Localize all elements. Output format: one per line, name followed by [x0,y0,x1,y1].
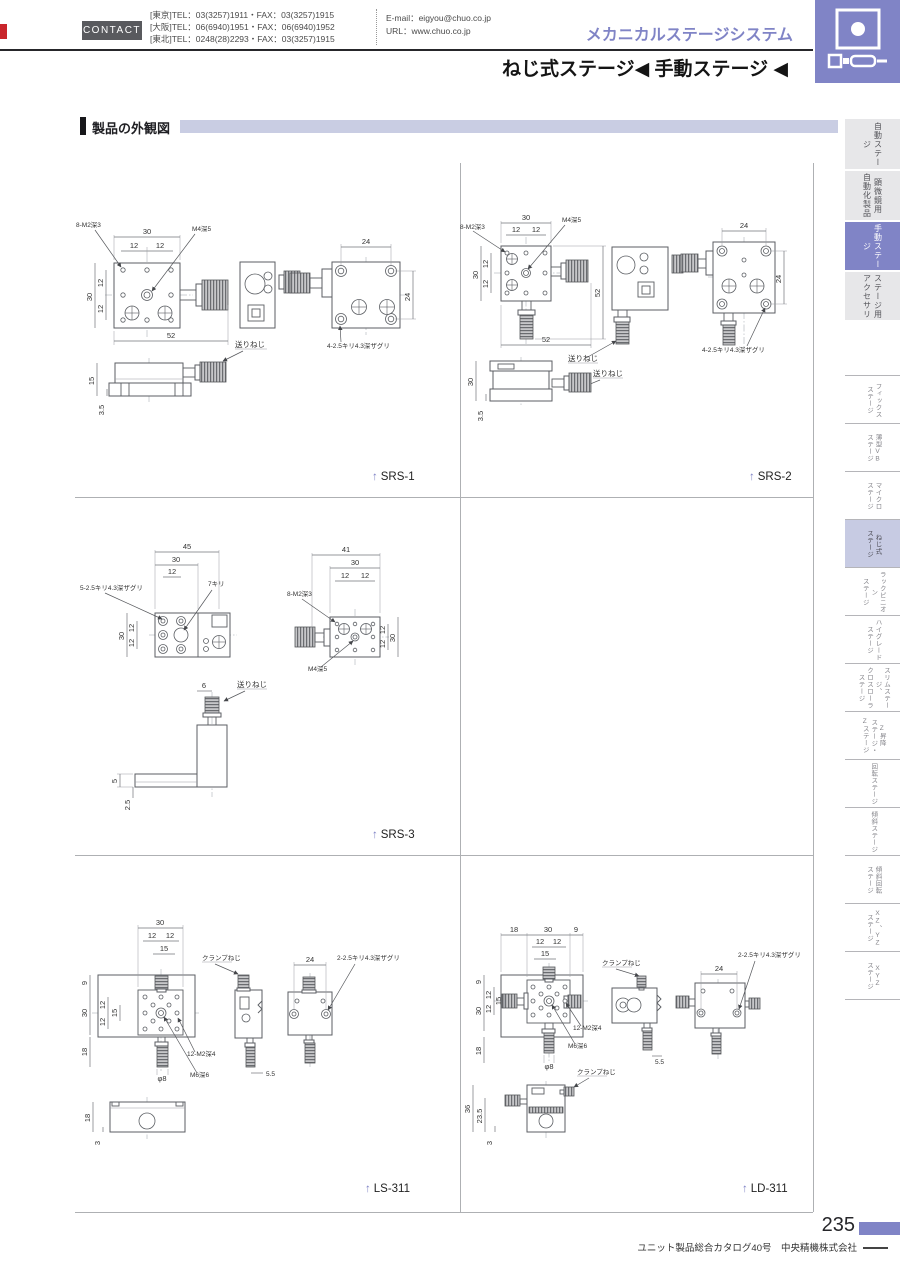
dim-label: 15 [87,377,96,385]
dim-label: 12 [532,225,540,234]
dim-label: 12 [168,567,176,576]
tel-tohoku: [東北]TEL：0248(28)2293・FAX：03(3257)1915 [150,33,335,45]
system-title: メカニカルステージシステム [586,21,793,45]
srs2-drawing: 30 12 12 8-M2深3 M4深5 30 12 12 52 52 送りねじ… [460,165,813,497]
tab-label: ステージ [864,866,873,894]
ld311-front-view: クランプねじ 36 23.5 3 [463,1068,616,1145]
page-number-bar [859,1222,900,1235]
srs1-bottom-view: 24 24 4-2.5キリ4.3深ザグリ [290,237,416,350]
catalog-note: ユニット製品総合カタログ40号 中央精機株式会社 [637,1240,857,1254]
dim-label: 12 [166,931,174,940]
product-label-ls311: ↑LS-311 [365,1183,410,1195]
product-name: SRS-2 [758,471,792,483]
dim-label: 52 [542,335,550,344]
srs2-front-view: 30 3.5 [466,357,591,421]
dim-label: 24 [715,964,723,973]
dim-label: 12 [553,937,561,946]
tab-label: Z昇降 [877,718,886,754]
dim-label: 12 [148,931,156,940]
sidebar-tab-stage-accessories[interactable]: ステージ用アクセサリ [845,272,900,320]
tab-label: Zステージ [860,718,869,754]
dim-label: 30 [544,925,552,934]
stage-icon [815,0,900,83]
section-bar [180,120,838,133]
ls311-plan-view: 30 12 12 15 9 30 12 12 15 18 φ8 クランプねじ 1… [80,918,241,1083]
product-label-ld311: ↑LD-311 [742,1183,788,1195]
dim-label: 24 [740,221,748,230]
sidebar-tab-microscope-products[interactable]: 顕微鏡用自動化製品 [845,171,900,220]
callout-label: 8-M2深3 [76,220,101,229]
tab-label: XZ、YZ [873,910,882,947]
dim-label: 30 [474,1007,483,1015]
callout-label: 4-2.5キリ4.3深ザグリ [327,341,390,350]
dim-label: 18 [83,1114,92,1122]
product-label-srs2: ↑SRS-2 [749,471,792,483]
dim-label: 5 [110,779,119,783]
up-arrow-icon: ↑ [372,829,378,841]
tab-label: 自動化製品 [862,173,873,218]
dim-label: 15 [494,997,503,1005]
dim-label: 3.5 [97,405,106,415]
tab-label: XYZ [873,962,882,990]
tab-label: 薄型VB [873,434,882,463]
dim-label: 15 [160,944,168,953]
tab-label: ステージ [856,664,865,712]
dim-label: 30 [522,213,530,222]
sidebar-subtab-tilt-stage[interactable]: 傾斜ステージ [845,807,900,856]
callout-label: M4深5 [308,664,328,673]
srs2-bottom-view: 24 24 4-2.5キリ4.3深ザグリ [681,221,787,354]
dim-label: 12 [484,1005,493,1013]
up-arrow-icon: ↑ [742,1183,748,1195]
dim-label: 3 [93,1141,102,1145]
dim-label: 30 [466,378,475,386]
tel-tokyo: [東京]TEL：03(3257)1911・FAX：03(3257)1915 [150,9,335,21]
callout-label: 8-M2深3 [460,222,485,231]
sidebar-subtab-xz-yz-stage[interactable]: XZ、YZステージ [845,903,900,952]
srs1-side-view [240,262,300,328]
tab-label: マイクロ [873,482,882,510]
page-number: 235 [822,1214,855,1237]
dim-label: 30 [117,632,126,640]
sidebar-subtab-xyz-stage[interactable]: XYZステージ [845,951,900,1000]
tab-label: ステージ [864,910,873,947]
dim-label: 52 [167,331,175,340]
dim-label: 12 [378,640,387,648]
product-name: LS-311 [374,1183,410,1195]
sidebar-subtab-fix-stage[interactable]: フィックスステージ [845,375,900,424]
dim-label: φ8 [157,1074,166,1083]
srs1-drawing: 30 12 12 8-M2深3 M4深5 30 12 12 52 24 [75,165,460,497]
callout-label: クランプねじ [577,1068,616,1076]
dim-label: 12 [96,305,105,313]
tab-label: 回転ステージ [868,763,877,805]
callout-label: M4深5 [562,215,582,224]
callout-label: 8-M2深3 [287,589,312,598]
product-label-srs3: ↑SRS-3 [372,829,415,841]
tab-label: ステージ [860,568,869,616]
tab-label: ハイグレード [873,619,882,661]
product-name: SRS-1 [381,471,415,483]
dim-label: 36 [463,1105,472,1113]
grid-hline-bottom [75,1212,813,1213]
dim-label: 12 [481,260,490,268]
up-arrow-icon: ↑ [372,471,378,483]
tab-label: ステージ [864,530,873,558]
sidebar-end-rule [845,999,900,1000]
callout-label: 12-M2深4 [573,1023,602,1032]
dim-label: 12 [127,639,136,647]
srs2-plan-view: 30 12 12 8-M2深3 M4深5 30 12 12 52 52 [460,213,606,348]
dim-label: 9 [80,981,89,985]
tab-label: 自動ステージ [862,119,884,169]
ls311-front-view: 18 3 [83,1097,185,1145]
dim-label: φ8 [544,1062,553,1071]
header-rule [0,49,813,51]
ld311-rear-view: 24 2-2.5キリ4.3深ザグリ [676,950,801,1059]
contact-web-block: E-mail：eigyou@chuo.co.jp URL：www.chuo.co… [386,12,491,38]
dim-label: 12 [127,624,136,632]
tab-label: クロスローラ [864,664,873,712]
dim-label: 30 [172,555,180,564]
srs3-bottom-view: 45 30 12 5-2.5キリ4.3深ザグリ 7キリ 30 12 12 [80,542,237,657]
contact-badge: CONTACT [82,21,142,40]
tab-label: ステージ・ [868,718,877,754]
category-icon-box [815,0,900,83]
dim-label: 24 [403,293,412,301]
tab-label: 傾斜回転 [873,866,882,894]
callout-label: 送りねじ [237,679,267,689]
sidebar-subtab-micro-stage[interactable]: マイクロステージ [845,471,900,520]
dim-label: 23.5 [475,1109,484,1124]
catalog-note-rule [863,1247,888,1249]
dim-label: 12 [156,241,164,250]
tab-label: ステージ [864,482,873,510]
dim-label: 30 [80,1009,89,1017]
callout-label: 4-2.5キリ4.3深ザグリ [702,345,765,354]
sidebar-tab-manual-stage[interactable]: 手動ステージ [845,222,900,270]
tab-label: ステージ [864,619,873,661]
sidebar-subtab-screw-stage[interactable]: ねじ式ステージ [845,519,900,568]
dim-label: 24 [362,237,370,246]
dim-label: 18 [474,1047,483,1055]
dim-label: 45 [183,542,191,551]
srs2-side-view [612,247,683,344]
srs1-front-view: 15 3.5 送りねじ [87,339,267,415]
sidebar-subtab-rack-pinion-stage[interactable]: ラックピニオンステージ [845,567,900,616]
tab-label: 顕微鏡用 [873,173,884,218]
dim-label: 12 [378,626,387,634]
dim-label: 24 [306,955,314,964]
tab-label: ラックピニオン [868,568,885,616]
sidebar-subtab-slim-crossroller-stage[interactable]: スリムステージ、クロスローラステージ [845,663,900,712]
tab-label: ステージ [864,962,873,990]
contact-phone-block: [東京]TEL：03(3257)1911・FAX：03(3257)1915 [大… [150,9,335,45]
tel-osaka: [大阪]TEL：06(6940)1951・FAX：06(6940)1952 [150,21,335,33]
header-divider [376,9,377,45]
callout-label: 2-2.5キリ4.3深ザグリ [738,950,801,959]
product-name: SRS-3 [381,829,415,841]
dim-label: 5.5 [655,1059,664,1066]
srs3-drawing: 45 30 12 5-2.5キリ4.3深ザグリ 7キリ 30 12 12 41 … [75,497,460,855]
dim-label: 12 [481,280,490,288]
dim-label: 3.5 [476,411,485,421]
callout-label: 7キリ [208,581,225,588]
callout-label: M6深6 [190,1070,210,1079]
callout-label: 12-M2深4 [187,1049,216,1058]
dim-label: 30 [156,918,164,927]
ls311-drawing: 30 12 12 15 9 30 12 12 15 18 φ8 クランプねじ 1… [75,855,460,1212]
dim-label: 52 [593,289,602,297]
email-text[interactable]: E-mail：eigyou@chuo.co.jp [386,12,491,25]
dim-label: 12 [96,279,105,287]
callout-label: クランプねじ [602,959,641,967]
dim-label: 6 [202,681,206,690]
ls311-rear-view: 24 2-2.5キリ4.3深ザグリ [288,953,400,1067]
tab-label: スリムステージ、 [873,664,890,712]
callout-label: M6深6 [568,1041,588,1050]
tab-label: アクセサリ [862,274,873,319]
dim-label: 12 [484,991,493,999]
up-arrow-icon: ↑ [749,471,755,483]
dim-label: 12 [341,571,349,580]
callout-label: 2-2.5キリ4.3深ザグリ [337,953,400,962]
sidebar-subtab-rotation-stage[interactable]: 回転ステージ [845,759,900,808]
callout-label: M4深5 [192,224,212,233]
dim-label: 9 [574,925,578,934]
up-arrow-icon: ↑ [365,1183,371,1195]
ls311-side-view: 5.5 [235,975,275,1078]
dim-label: 12 [98,1001,107,1009]
dim-label: 18 [80,1048,89,1056]
dim-label: 3 [485,1141,494,1145]
dim-label: 15 [541,949,549,958]
dim-label: 5.5 [266,1071,275,1078]
dim-label: 30 [471,271,480,279]
dim-label: 30 [388,634,397,642]
tab-label: フィックス [873,383,882,418]
tab-label: ねじ式 [873,530,882,558]
dim-label: 12 [98,1018,107,1026]
srs3-top-view: 41 30 12 12 8-M2深3 12 12 30 M4深5 [287,545,398,673]
dim-label: 12 [512,225,520,234]
page-title: ねじ式ステージ◀ 手動ステージ ◀ [502,54,788,81]
sidebar-subtab-z-stage[interactable]: Z昇降ステージ・Zステージ [845,711,900,760]
dim-label: 30 [85,293,94,301]
tab-label: ステージ [864,434,873,463]
dim-label: 24 [774,275,783,283]
sidebar-subtab-high-grade-stage[interactable]: ハイグレードステージ [845,615,900,664]
ld311-drawing: 18 30 9 12 12 15 9 30 12 12 15 18 φ8 12-… [460,855,813,1212]
tab-label: ステージ [864,383,873,418]
sidebar-tab-auto-stage[interactable]: 自動ステージ [845,119,900,169]
srs3-front-view: 6 5 2.5 送りねじ [110,679,267,810]
sidebar-subtab-tilt-rotation-stage[interactable]: 傾斜回転ステージ [845,855,900,904]
dim-label: 9 [474,980,483,984]
product-name: LD-311 [751,1183,788,1195]
tab-label: 傾斜ステージ [868,811,877,853]
page-edge-marker [0,24,7,39]
sidebar-subtab-thin-stage[interactable]: 薄型VBステージ [845,423,900,472]
dim-label: 12 [536,937,544,946]
tab-label: 手動ステージ [862,222,884,270]
section-title: 製品の外観図 [92,118,170,137]
dim-label: 41 [342,545,350,554]
ld311-side-view: クランプねじ 5.5 [602,959,664,1066]
product-label-srs1: ↑SRS-1 [372,471,415,483]
dim-label: 30 [351,558,359,567]
callout-label: 送りねじ [235,339,265,349]
ld311-plan-view: 18 30 9 12 12 15 9 30 12 12 15 18 φ8 12-… [474,925,602,1071]
dim-label: 15 [110,1009,119,1017]
dim-label: 30 [143,227,151,236]
callout-label: クランプねじ [202,954,241,962]
callout-label: 送りねじ [568,353,598,363]
section-marker [80,117,86,135]
tab-label: ステージ用 [873,274,884,319]
callout-label: 送りねじ [593,368,623,378]
dim-label: 12 [130,241,138,250]
dim-label: 18 [510,925,518,934]
dim-label: 2.5 [123,800,132,810]
srs1-plan-view: 30 12 12 8-M2深3 M4深5 30 12 12 52 [76,220,228,345]
callout-label: 5-2.5キリ4.3深ザグリ [80,583,143,592]
dim-label: 12 [361,571,369,580]
grid-vline-right [813,163,814,1212]
url-text[interactable]: URL：www.chuo.co.jp [386,25,491,38]
